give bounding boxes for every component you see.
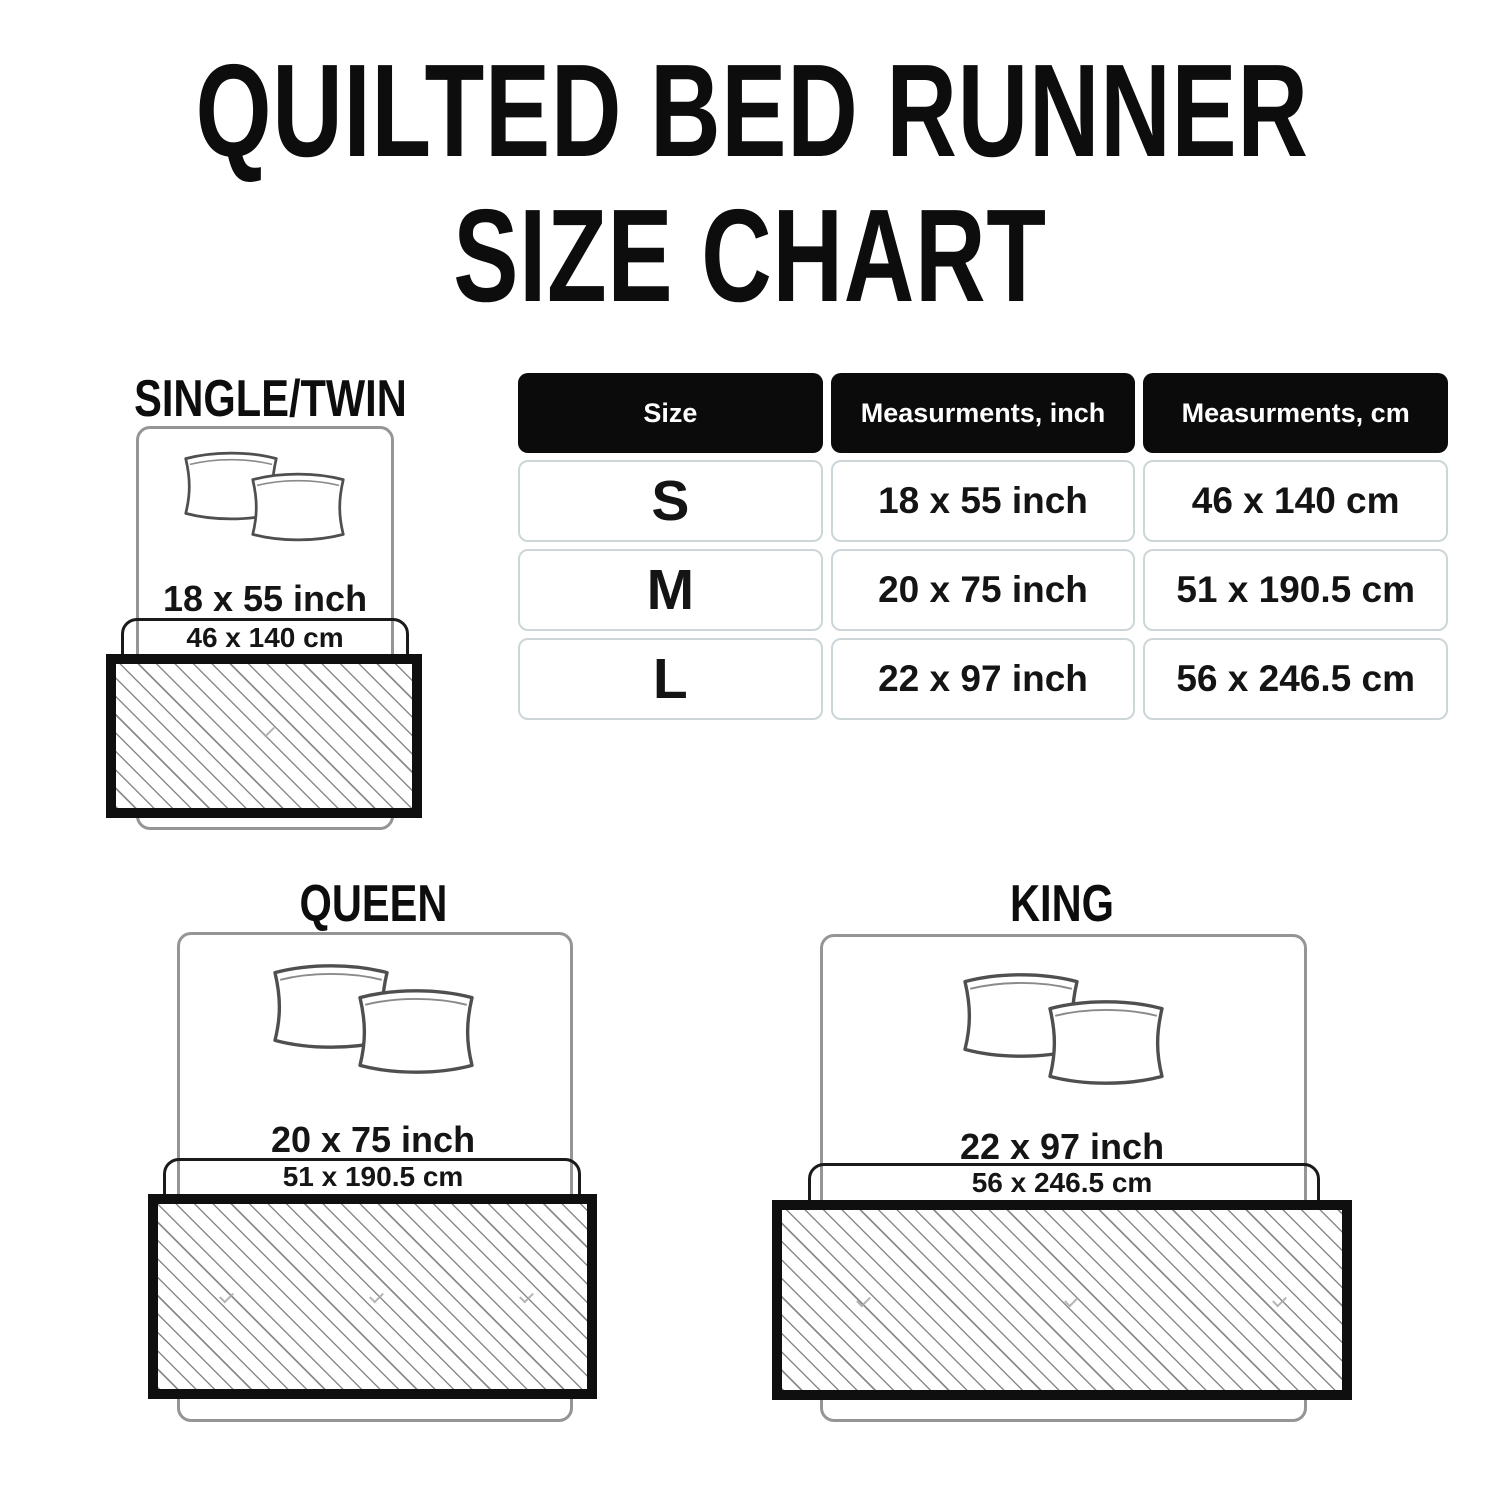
pillow-icon xyxy=(245,467,351,547)
diagram-queen: QUEEN 20 x 75 inch 51 x 190.5 cm xyxy=(148,878,598,1432)
stitch-mark xyxy=(1064,1293,1079,1308)
title-line-1-text: QUILTED BED RUNNER xyxy=(196,38,1309,183)
pillow-icon xyxy=(1040,993,1172,1092)
stitch-mark xyxy=(856,1293,871,1308)
runner-size-cm-label: 56 x 246.5 cm xyxy=(772,1169,1352,1197)
column-header-measurements-cm: Measurments, cm xyxy=(1143,373,1448,453)
runner-size-inch-label: 22 x 97 inch xyxy=(772,1129,1352,1165)
table-cell-cm-m: 51 x 190.5 cm xyxy=(1143,549,1448,631)
diagram-single-twin: SINGLE/TWIN 18 x 55 inch 46 x 140 cm xyxy=(100,373,430,835)
stitch-mark xyxy=(519,1289,534,1304)
table-cell-size-m: M xyxy=(518,549,823,631)
table-cell-size-s: S xyxy=(518,460,823,542)
table-cell-cm-s: 46 x 140 cm xyxy=(1143,460,1448,542)
diagram-single-twin-title-text: SINGLE/TWIN xyxy=(134,373,407,425)
runner-size-cm-label: 51 x 190.5 cm xyxy=(148,1163,598,1191)
runner-size-inch-label: 20 x 75 inch xyxy=(148,1122,598,1158)
stitch-mark xyxy=(369,1289,384,1304)
quilted-bed-runner xyxy=(148,1194,597,1399)
runner-size-cm-label: 46 x 140 cm xyxy=(100,624,430,652)
column-header-size: Size xyxy=(518,373,823,453)
pillow-icon xyxy=(350,982,482,1081)
diagram-king-title: KING xyxy=(772,878,1352,930)
table-cell-size-l: L xyxy=(518,638,823,720)
stitch-mark xyxy=(260,723,275,738)
diagram-queen-title-text: QUEEN xyxy=(299,878,447,930)
quilted-bed-runner xyxy=(106,654,422,818)
diagram-single-twin-title: SINGLE/TWIN xyxy=(100,373,430,425)
table-cell-inch-m: 20 x 75 inch xyxy=(831,549,1136,631)
stitch-mark xyxy=(1272,1293,1287,1308)
table-cell-inch-s: 18 x 55 inch xyxy=(831,460,1136,542)
diagram-king-title-text: KING xyxy=(1010,878,1114,930)
runner-size-inch-label: 18 x 55 inch xyxy=(100,581,430,617)
table-cell-inch-l: 22 x 97 inch xyxy=(831,638,1136,720)
column-header-measurements-inch: Measurments, inch xyxy=(831,373,1136,453)
diagram-queen-title: QUEEN xyxy=(148,878,598,930)
page-title: QUILTED BED RUNNER SIZE CHART xyxy=(0,38,1500,328)
size-table: Size Measurments, inch Measurments, cm S… xyxy=(518,373,1448,720)
title-line-2: SIZE CHART xyxy=(0,183,1500,328)
table-cell-cm-l: 56 x 246.5 cm xyxy=(1143,638,1448,720)
size-chart-infographic: QUILTED BED RUNNER SIZE CHART Size Measu… xyxy=(0,0,1500,1500)
title-line-2-text: SIZE CHART xyxy=(453,183,1046,328)
quilted-bed-runner xyxy=(772,1200,1352,1400)
diagram-king: KING 22 x 97 inch 56 x 246.5 cm xyxy=(772,878,1352,1432)
title-line-1: QUILTED BED RUNNER xyxy=(0,38,1500,183)
stitch-mark xyxy=(219,1289,234,1304)
